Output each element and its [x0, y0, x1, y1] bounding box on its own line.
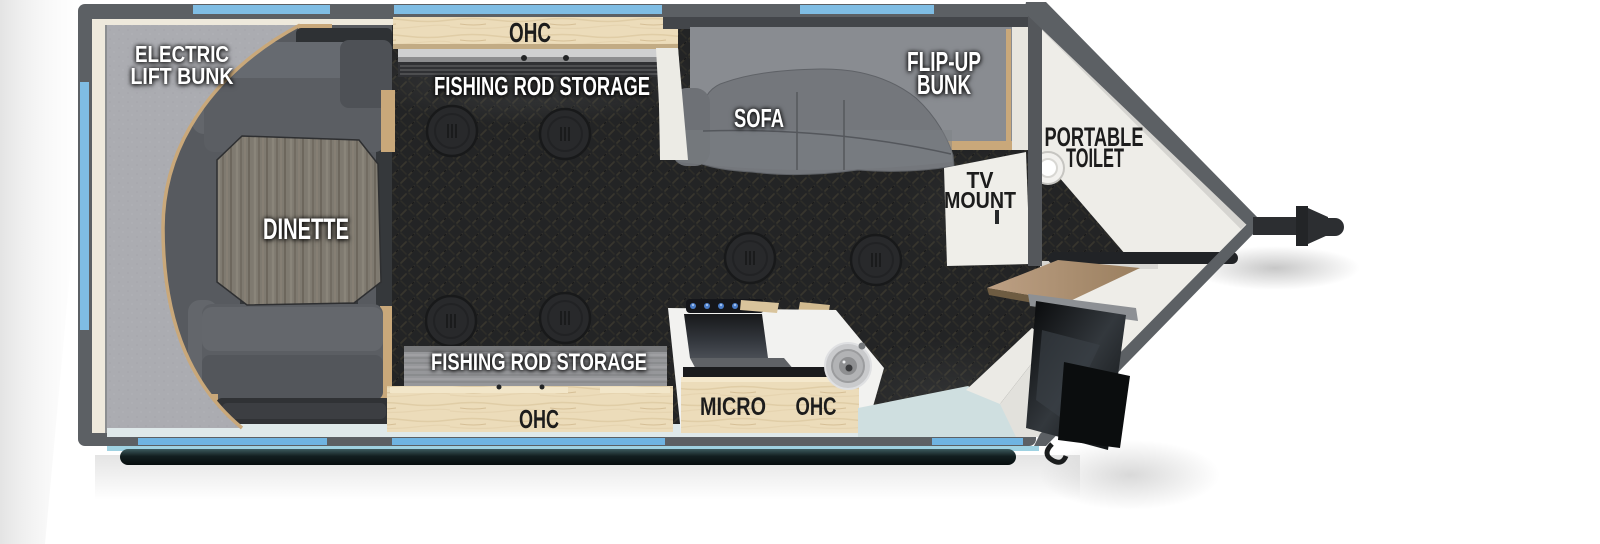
svg-text:LIFT BUNK: LIFT BUNK — [131, 63, 234, 89]
svg-text:DINETTE: DINETTE — [263, 213, 349, 246]
svg-text:MICRO: MICRO — [700, 393, 766, 421]
svg-text:OHC: OHC — [519, 404, 559, 434]
svg-text:OHC: OHC — [509, 17, 551, 48]
svg-text:MOUNT: MOUNT — [944, 187, 1016, 213]
svg-text:OHC: OHC — [796, 393, 837, 421]
svg-text:SOFA: SOFA — [734, 103, 784, 133]
svg-text:FISHING ROD STORAGE: FISHING ROD STORAGE — [431, 349, 647, 376]
svg-text:BUNK: BUNK — [917, 69, 971, 100]
svg-text:TOILET: TOILET — [1066, 143, 1124, 173]
svg-text:FISHING ROD STORAGE: FISHING ROD STORAGE — [434, 71, 650, 101]
